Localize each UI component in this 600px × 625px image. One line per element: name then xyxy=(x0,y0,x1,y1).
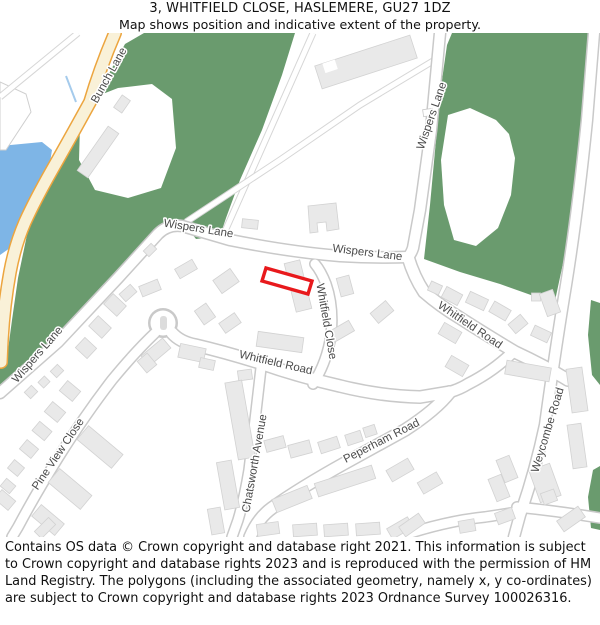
building xyxy=(324,523,349,537)
building xyxy=(242,219,259,230)
building xyxy=(458,519,476,534)
os-map: Bunch Lane Wispers Lane Wispers Lane Wis… xyxy=(0,33,600,537)
map-canvas: Bunch Lane Wispers Lane Wispers Lane Wis… xyxy=(0,33,600,537)
page-title: 3, WHITFIELD CLOSE, HASLEMERE, GU27 1DZ xyxy=(0,1,600,16)
copyright-footer: Contains OS data © Crown copyright and d… xyxy=(0,537,600,625)
building xyxy=(356,522,381,536)
building xyxy=(237,369,252,381)
copyright-text: Contains OS data © Crown copyright and d… xyxy=(5,539,596,607)
building xyxy=(256,522,279,537)
map-header: 3, WHITFIELD CLOSE, HASLEMERE, GU27 1DZ … xyxy=(0,0,600,33)
page-subtitle: Map shows position and indicative extent… xyxy=(0,17,600,32)
building xyxy=(293,523,318,537)
